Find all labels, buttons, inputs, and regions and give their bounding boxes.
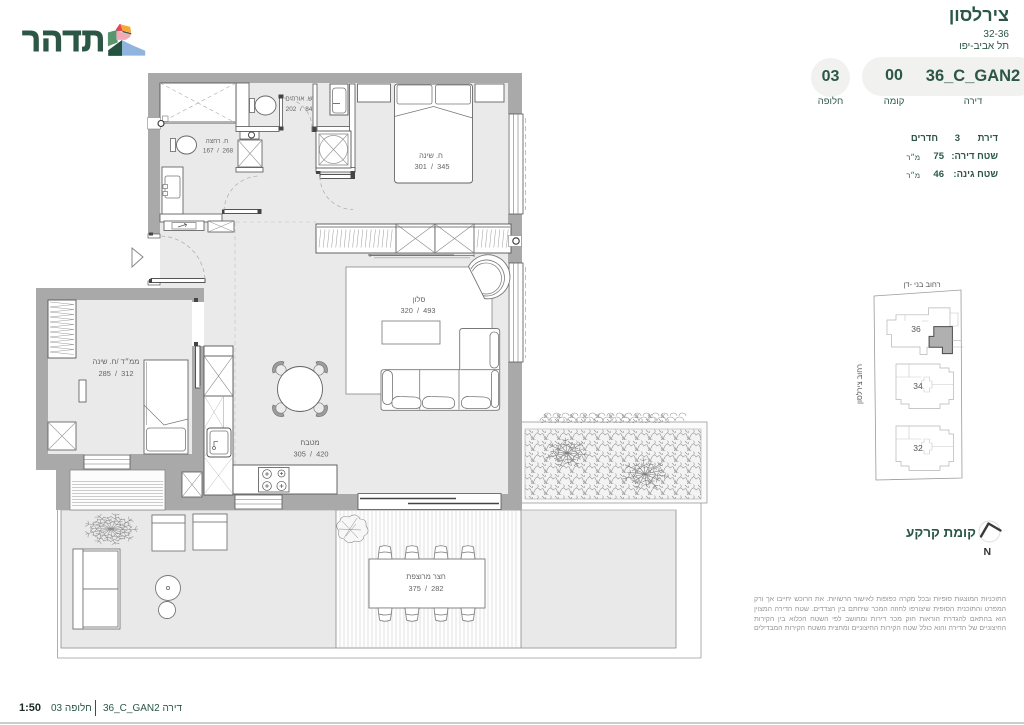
svg-text:קומת קרקע: קומת קרקע — [906, 525, 976, 540]
svg-text:סלון: סלון — [413, 295, 426, 304]
svg-text:285 / 312: 285 / 312 — [99, 369, 134, 378]
svg-text:רחוב בני -דן: רחוב בני -דן — [903, 280, 940, 289]
svg-text:מטבח: מטבח — [300, 438, 319, 447]
svg-text:ח. שינה: ח. שינה — [419, 151, 443, 160]
svg-text:32: 32 — [913, 443, 923, 453]
svg-text:ח. רחצה: ח. רחצה — [206, 138, 229, 145]
svg-text:375 / 282: 375 / 282 — [409, 584, 444, 593]
svg-text:167 / 268: 167 / 268 — [203, 148, 234, 155]
svg-text:N: N — [984, 546, 992, 558]
svg-text:34: 34 — [913, 381, 923, 391]
svg-text:202 / 84: 202 / 84 — [286, 106, 313, 113]
svg-text:רחוב צירלסון: רחוב צירלסון — [855, 364, 864, 404]
svg-text:305 / 420: 305 / 420 — [294, 450, 329, 459]
svg-text:ש. אורחים: ש. אורחים — [285, 96, 313, 103]
svg-text:ממ״ד /ח. שינה: ממ״ד /ח. שינה — [93, 357, 140, 366]
svg-text:301 / 345: 301 / 345 — [415, 162, 450, 171]
svg-text:320 / 493: 320 / 493 — [401, 306, 436, 315]
svg-text:חצר מרוצפת: חצר מרוצפת — [406, 572, 446, 581]
svg-text:36: 36 — [911, 324, 921, 334]
